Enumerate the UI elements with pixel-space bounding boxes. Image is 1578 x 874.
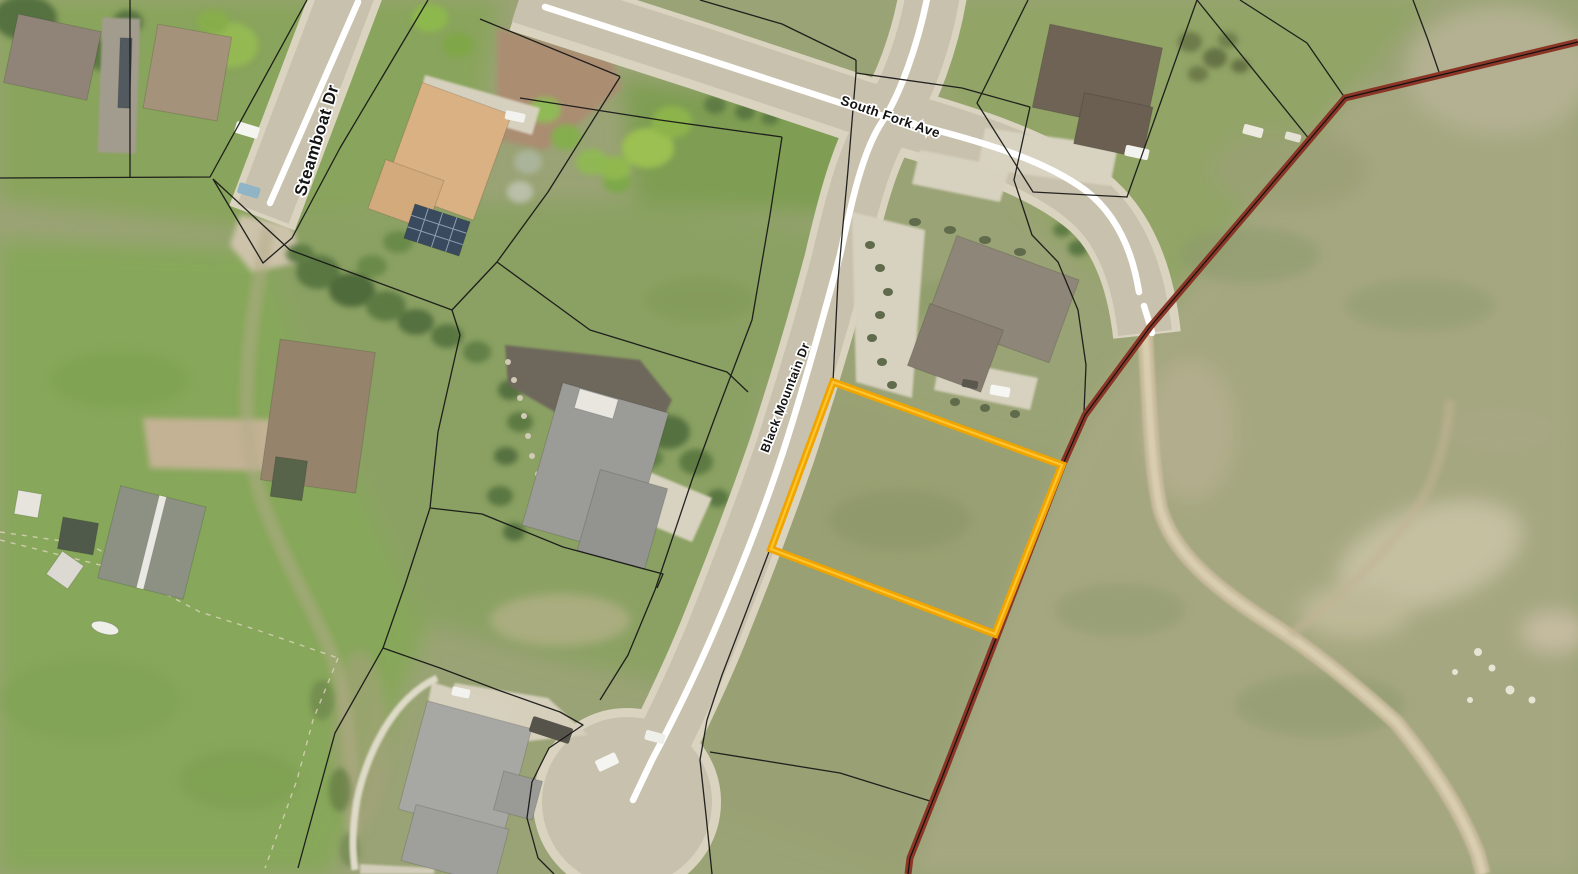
aerial-map[interactable]: Steamboat Dr South Fork Ave Black Mounta… [0, 0, 1578, 874]
map-viewport[interactable]: Steamboat Dr South Fork Ave Black Mounta… [0, 0, 1578, 874]
